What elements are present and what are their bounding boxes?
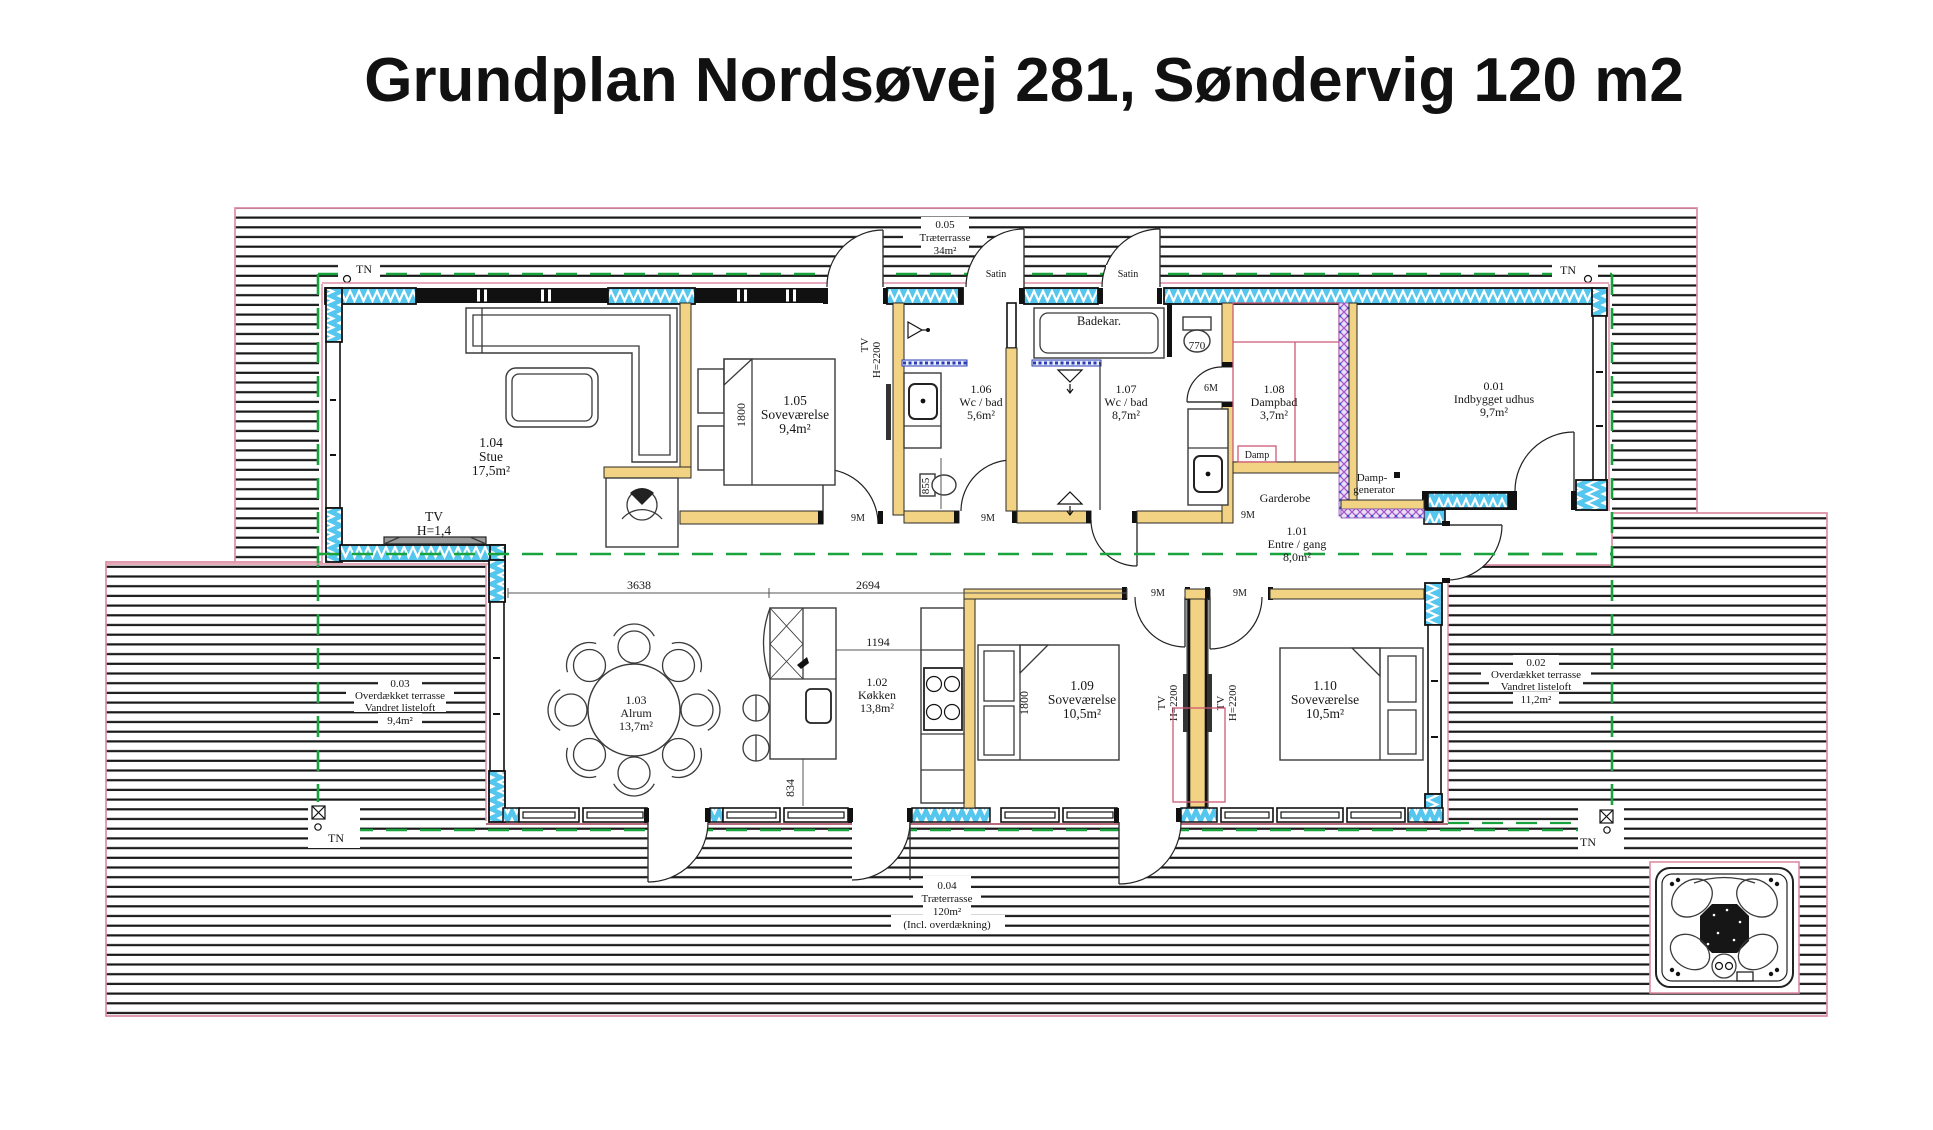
svg-text:11,2m²: 11,2m² (1521, 694, 1552, 706)
svg-text:TV: TV (425, 509, 443, 524)
svg-text:3,7m²: 3,7m² (1260, 408, 1288, 422)
svg-text:1.07: 1.07 (1116, 382, 1137, 396)
svg-text:Soveværelse: Soveværelse (1291, 692, 1359, 707)
svg-text:TN: TN (1580, 835, 1596, 849)
svg-text:17,5m²: 17,5m² (472, 463, 510, 478)
svg-text:generator: generator (1353, 484, 1395, 496)
svg-text:Træterrasse: Træterrasse (922, 893, 973, 905)
svg-text:9,7m²: 9,7m² (1480, 405, 1508, 419)
svg-text:H=2200: H=2200 (1168, 684, 1180, 721)
svg-text:0.02: 0.02 (1526, 657, 1545, 669)
svg-text:TV: TV (1156, 696, 1168, 711)
svg-text:10,5m²: 10,5m² (1306, 706, 1344, 721)
svg-text:0.04: 0.04 (937, 880, 957, 892)
svg-text:0.01: 0.01 (1484, 379, 1505, 393)
svg-text:855: 855 (920, 477, 932, 494)
svg-text:1.01: 1.01 (1287, 524, 1308, 538)
svg-text:9,4m²: 9,4m² (779, 421, 810, 436)
svg-text:1800: 1800 (734, 403, 748, 427)
svg-text:1.05: 1.05 (783, 393, 807, 408)
svg-text:1194: 1194 (866, 635, 890, 649)
svg-text:Alrum: Alrum (620, 706, 652, 720)
svg-text:1.08: 1.08 (1264, 382, 1285, 396)
svg-text:Wc / bad: Wc / bad (959, 395, 1002, 409)
svg-text:6M: 6M (1204, 383, 1218, 394)
svg-text:Køkken: Køkken (858, 688, 896, 702)
svg-text:Træterrasse: Træterrasse (920, 232, 971, 244)
svg-text:1.03: 1.03 (626, 693, 647, 707)
svg-text:1.10: 1.10 (1313, 678, 1337, 693)
svg-text:Vandret listeloft: Vandret listeloft (1501, 681, 1572, 693)
svg-text:Damp: Damp (1245, 450, 1269, 461)
svg-text:H=2200: H=2200 (871, 341, 883, 378)
svg-text:1.09: 1.09 (1070, 678, 1094, 693)
svg-text:Dampbad: Dampbad (1251, 395, 1298, 409)
svg-text:Wc / bad: Wc / bad (1104, 395, 1147, 409)
svg-text:Indbygget udhus: Indbygget udhus (1454, 392, 1535, 406)
svg-text:Badekar.: Badekar. (1077, 314, 1121, 328)
svg-text:Overdækket terrasse: Overdækket terrasse (355, 690, 445, 702)
svg-text:Grundplan Nordsøvej 281, Sønde: Grundplan Nordsøvej 281, Søndervig 120 m… (364, 46, 1684, 115)
svg-text:770: 770 (1189, 340, 1206, 352)
svg-text:3638: 3638 (627, 578, 651, 592)
svg-text:34m²: 34m² (934, 245, 958, 257)
svg-text:Overdækket terrasse: Overdækket terrasse (1491, 669, 1581, 681)
svg-text:0.03: 0.03 (390, 678, 410, 690)
svg-text:Satin: Satin (986, 269, 1007, 280)
svg-text:Damp-: Damp- (1357, 472, 1388, 484)
svg-text:9M: 9M (981, 513, 995, 524)
svg-text:834: 834 (783, 779, 797, 797)
svg-text:13,7m²: 13,7m² (619, 719, 653, 733)
svg-text:8,7m²: 8,7m² (1112, 408, 1140, 422)
svg-text:9M: 9M (1233, 588, 1247, 599)
svg-text:Entre / gang: Entre / gang (1268, 537, 1327, 551)
svg-text:13,8m²: 13,8m² (860, 701, 894, 715)
svg-text:9M: 9M (1241, 510, 1255, 521)
svg-text:Vandret listeloft: Vandret listeloft (365, 702, 436, 714)
svg-text:TN: TN (356, 262, 372, 276)
svg-text:9M: 9M (1151, 588, 1165, 599)
svg-text:1.04: 1.04 (479, 435, 503, 450)
svg-text:9,4m²: 9,4m² (387, 715, 413, 727)
svg-text:TV: TV (859, 338, 871, 353)
svg-text:H=2200: H=2200 (1227, 684, 1239, 721)
svg-text:2694: 2694 (856, 578, 880, 592)
svg-text:Soveværelse: Soveværelse (761, 407, 829, 422)
svg-text:Satin: Satin (1118, 269, 1139, 280)
svg-text:TN: TN (1560, 263, 1576, 277)
svg-text:9M: 9M (851, 513, 865, 524)
svg-text:Garderobe: Garderobe (1260, 491, 1311, 505)
svg-text:Soveværelse: Soveværelse (1048, 692, 1116, 707)
svg-text:1800: 1800 (1017, 691, 1031, 715)
svg-text:120m²: 120m² (933, 906, 962, 918)
svg-text:10,5m²: 10,5m² (1063, 706, 1101, 721)
svg-text:8,0m²: 8,0m² (1283, 550, 1311, 564)
svg-text:5,6m²: 5,6m² (967, 408, 995, 422)
svg-text:0.05: 0.05 (935, 219, 955, 231)
svg-text:(Incl. overdækning): (Incl. overdækning) (903, 919, 991, 931)
svg-text:TN: TN (328, 831, 344, 845)
svg-text:1.02: 1.02 (867, 675, 888, 689)
svg-text:Stue: Stue (479, 449, 503, 464)
svg-text:1.06: 1.06 (971, 382, 992, 396)
svg-text:H=1,4: H=1,4 (417, 523, 451, 538)
